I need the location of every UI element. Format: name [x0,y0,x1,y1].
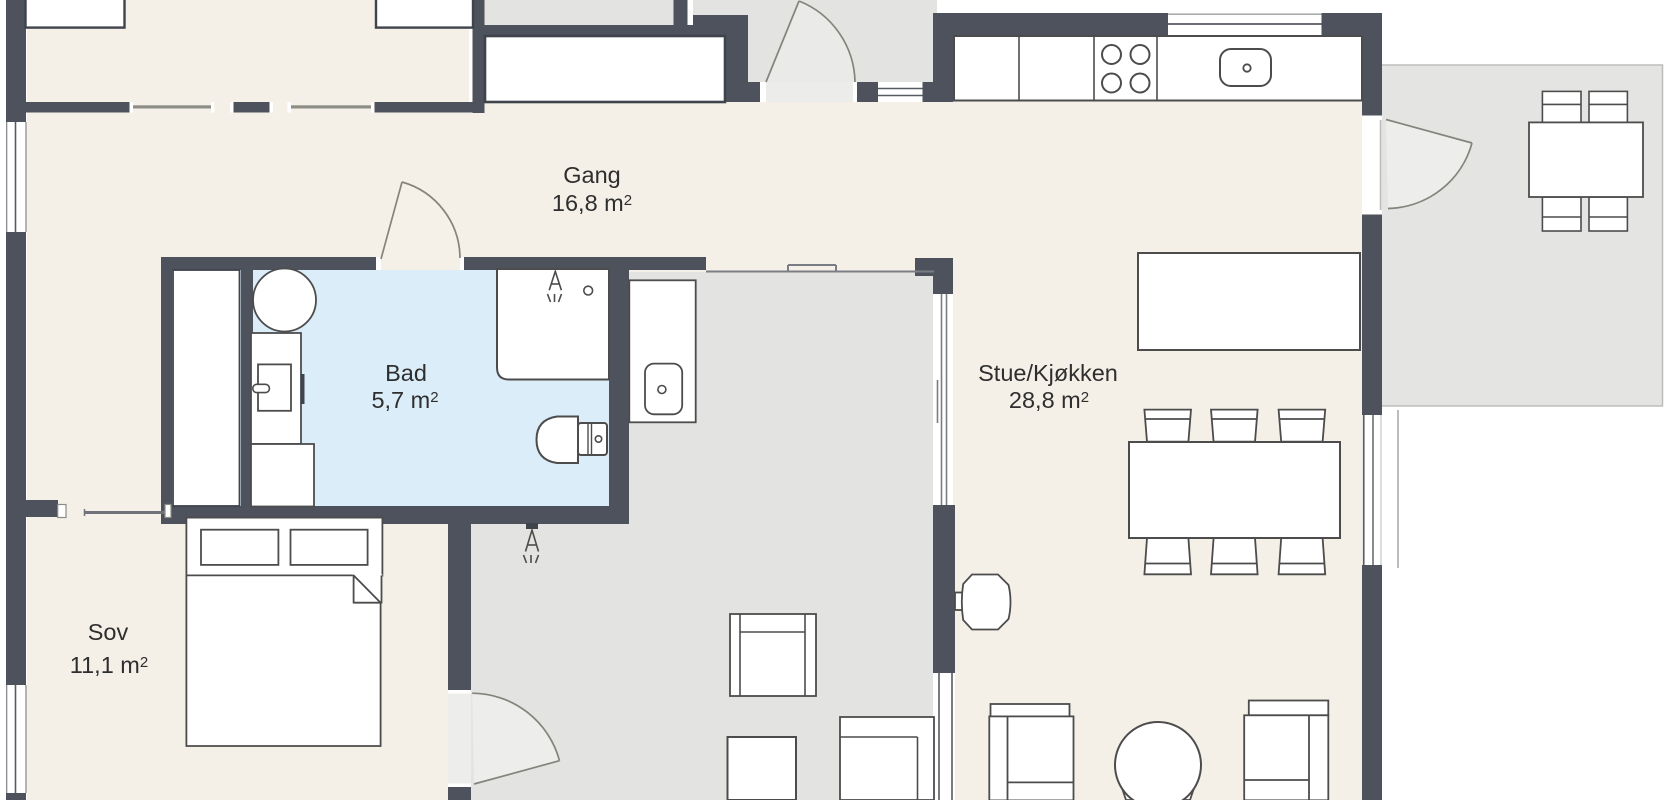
svg-text:11,1 m2: 11,1 m2 [70,652,148,678]
svg-text:Sov: Sov [88,619,129,645]
svg-text:Gang: Gang [563,162,621,188]
svg-text:5,7 m2: 5,7 m2 [371,387,438,413]
svg-text:28,8 m2: 28,8 m2 [1009,387,1089,413]
svg-text:Bad: Bad [385,360,427,386]
svg-text:16,8 m2: 16,8 m2 [552,190,632,216]
svg-text:Stue/Kjøkken: Stue/Kjøkken [978,360,1118,386]
